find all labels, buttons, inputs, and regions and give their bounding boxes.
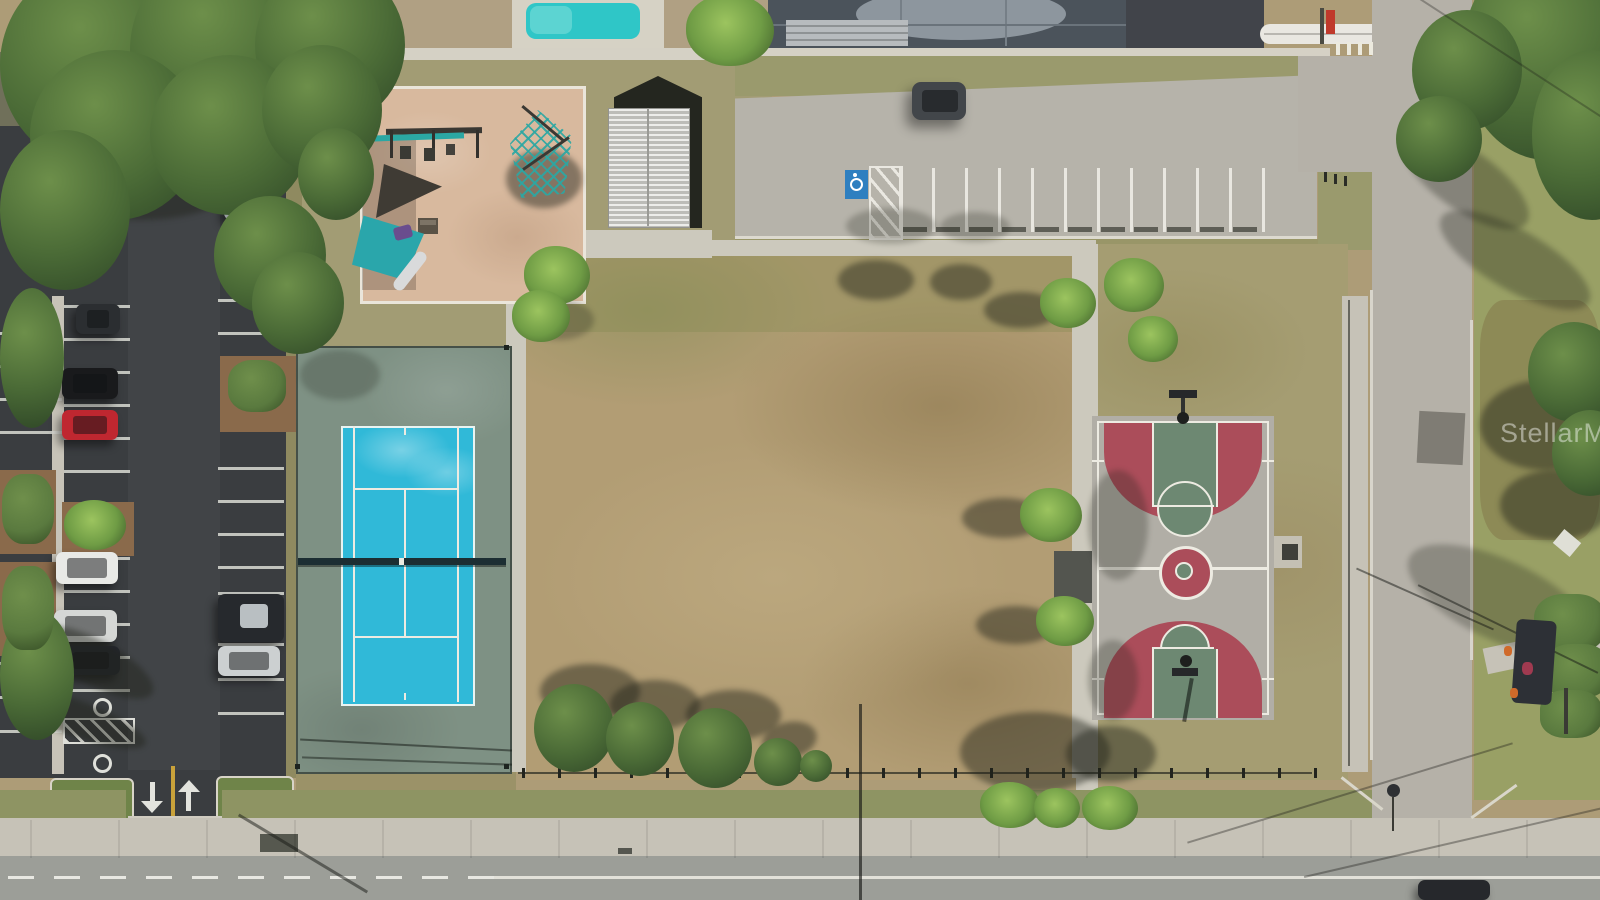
fence-post (954, 768, 957, 778)
palm-tree (1036, 596, 1094, 646)
court-palm-shadow (1088, 470, 1148, 580)
street-sign (1387, 784, 1400, 797)
fence-post (1206, 768, 1209, 778)
tree (534, 684, 614, 772)
tree (298, 128, 374, 220)
palm-tree (686, 0, 774, 66)
fence-post (666, 768, 669, 778)
fence-post (1170, 768, 1173, 778)
palm-tree (1040, 278, 1096, 328)
hedge (2, 566, 54, 650)
bush-shadow (838, 260, 914, 300)
fence-post (846, 768, 849, 778)
bush (228, 360, 286, 412)
fence-post (1242, 768, 1245, 778)
person (1522, 662, 1533, 675)
traffic-cone (1510, 688, 1518, 698)
fence-post (522, 768, 525, 778)
aerial-park-photo: StellarMLS (0, 0, 1600, 900)
utility-pole (859, 704, 862, 900)
palm-tree (1104, 258, 1164, 312)
fence-post (1278, 768, 1281, 778)
hedge (2, 474, 54, 544)
bush-row (1034, 788, 1080, 828)
pole-small (1564, 688, 1568, 734)
tree (754, 738, 802, 786)
watermark: StellarMLS (1500, 418, 1600, 449)
red-marker (1326, 10, 1335, 34)
tree (678, 708, 752, 788)
bush-row (980, 782, 1040, 828)
palm-tree (1128, 316, 1178, 362)
tree (252, 252, 344, 354)
tree (1396, 96, 1482, 182)
shadow-on-lot (846, 208, 936, 244)
tennis-corner-shade (300, 350, 380, 400)
palm-tree (1020, 488, 1082, 542)
bush-shadow (930, 264, 992, 300)
bush-row (1082, 786, 1138, 830)
tree (0, 130, 130, 290)
shadow-on-lot (940, 212, 1010, 242)
fence-post (1314, 768, 1317, 778)
fence-post (882, 768, 885, 778)
tree-shadow (1066, 726, 1156, 782)
traffic-cone (1504, 646, 1512, 656)
tree (0, 288, 64, 428)
fence-post (918, 768, 921, 778)
sign-pole (1392, 797, 1394, 831)
utility-pole (1320, 8, 1324, 44)
palm-tree (512, 290, 570, 342)
court-palm-shadow (1088, 640, 1138, 720)
tree (606, 702, 674, 776)
tree (800, 750, 832, 782)
palm-tree (64, 500, 126, 550)
fence-post (594, 768, 597, 778)
